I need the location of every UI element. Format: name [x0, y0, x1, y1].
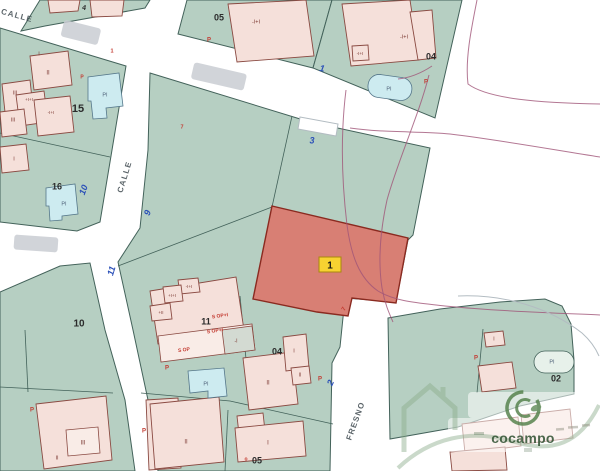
label-bldg-11-c: +II [158, 310, 163, 315]
label-pool-04: PI [386, 86, 392, 92]
label-bldg-15-minus: -I+I [48, 110, 55, 115]
label-bldg-11-b: +I+I [168, 293, 176, 298]
label-bldg-15-iii-b: III [11, 117, 16, 123]
label-parcel-02: 02 [551, 373, 561, 383]
label-mark-p-2: P [424, 80, 428, 86]
label-pool-11: PI [203, 381, 209, 387]
building-strip-a [48, 0, 80, 13]
label-parcel-05-top: 05 [214, 12, 224, 22]
building-02-pink [478, 362, 516, 392]
selected-parcel-badge: 1 [319, 257, 341, 272]
label-pool-16: PI [61, 201, 67, 207]
label-mark-p-1: P [207, 38, 211, 44]
label-parcel-10: 10 [73, 319, 85, 330]
building-04mid-i [283, 334, 309, 371]
building-se-r2 [521, 409, 573, 444]
label-bldg-04top-b: -I+I [357, 51, 364, 56]
parcel-badge-number: 1 [327, 261, 333, 272]
label-bldg-11-a: -I+I [186, 284, 193, 289]
label-mark-p-3: P [165, 366, 169, 372]
label-mark-p-7: P [474, 356, 478, 362]
label-housenum-3: 3 [309, 135, 314, 145]
label-bldg-04top-a: -I+I [400, 34, 409, 40]
label-bldg-15-iii-a: III [13, 90, 18, 96]
building-strip-b [90, 0, 124, 17]
blurred-street-label-2 [13, 234, 58, 252]
label-pool-02: PI [549, 359, 555, 365]
building-05bot-ii [150, 397, 224, 469]
label-bldg-10-iii: III [80, 441, 85, 447]
label-mark-7-a: 7 [180, 124, 183, 130]
label-mark-1-a: 1 [110, 48, 113, 54]
label-mark-o: o [244, 456, 247, 462]
building-15-c4 [34, 96, 74, 136]
label-pool-15: PI [102, 92, 108, 98]
building-05-top [228, 0, 314, 62]
map-canvas[interactable]: CALLECALLEFRESNO050415161011040502413910… [0, 0, 600, 471]
building-15-c1 [30, 51, 72, 90]
label-bldg-15-ii: II [46, 71, 50, 77]
label-parcel-15: 15 [72, 103, 84, 115]
building-11-gray [222, 326, 255, 354]
label-bldg-05top: -I+I [252, 19, 261, 25]
label-bldg-04mid-ii-s: II [299, 372, 302, 378]
label-bldg-10-ii: II [55, 455, 59, 461]
label-bldg-04mid-ii: II [266, 381, 270, 387]
label-mark-p-6: P [142, 429, 146, 435]
label-mark-p-4: P [318, 377, 322, 383]
label-bldg-02-i: I [493, 336, 494, 342]
label-parcel-16: 16 [52, 181, 62, 191]
label-parcel-04-top: 04 [426, 51, 436, 61]
label-parcel-04-mid: 04 [272, 346, 282, 356]
label-bldg-11-gray: -I [234, 338, 237, 344]
label-bldg-15-plus: +I+I [25, 97, 33, 102]
label-mark-p-5: P [30, 408, 34, 414]
label-parcel-11: 11 [201, 316, 211, 326]
label-bldg-05bot-ii: II [184, 440, 188, 446]
label-parcel-05-bottom: 05 [252, 455, 262, 465]
